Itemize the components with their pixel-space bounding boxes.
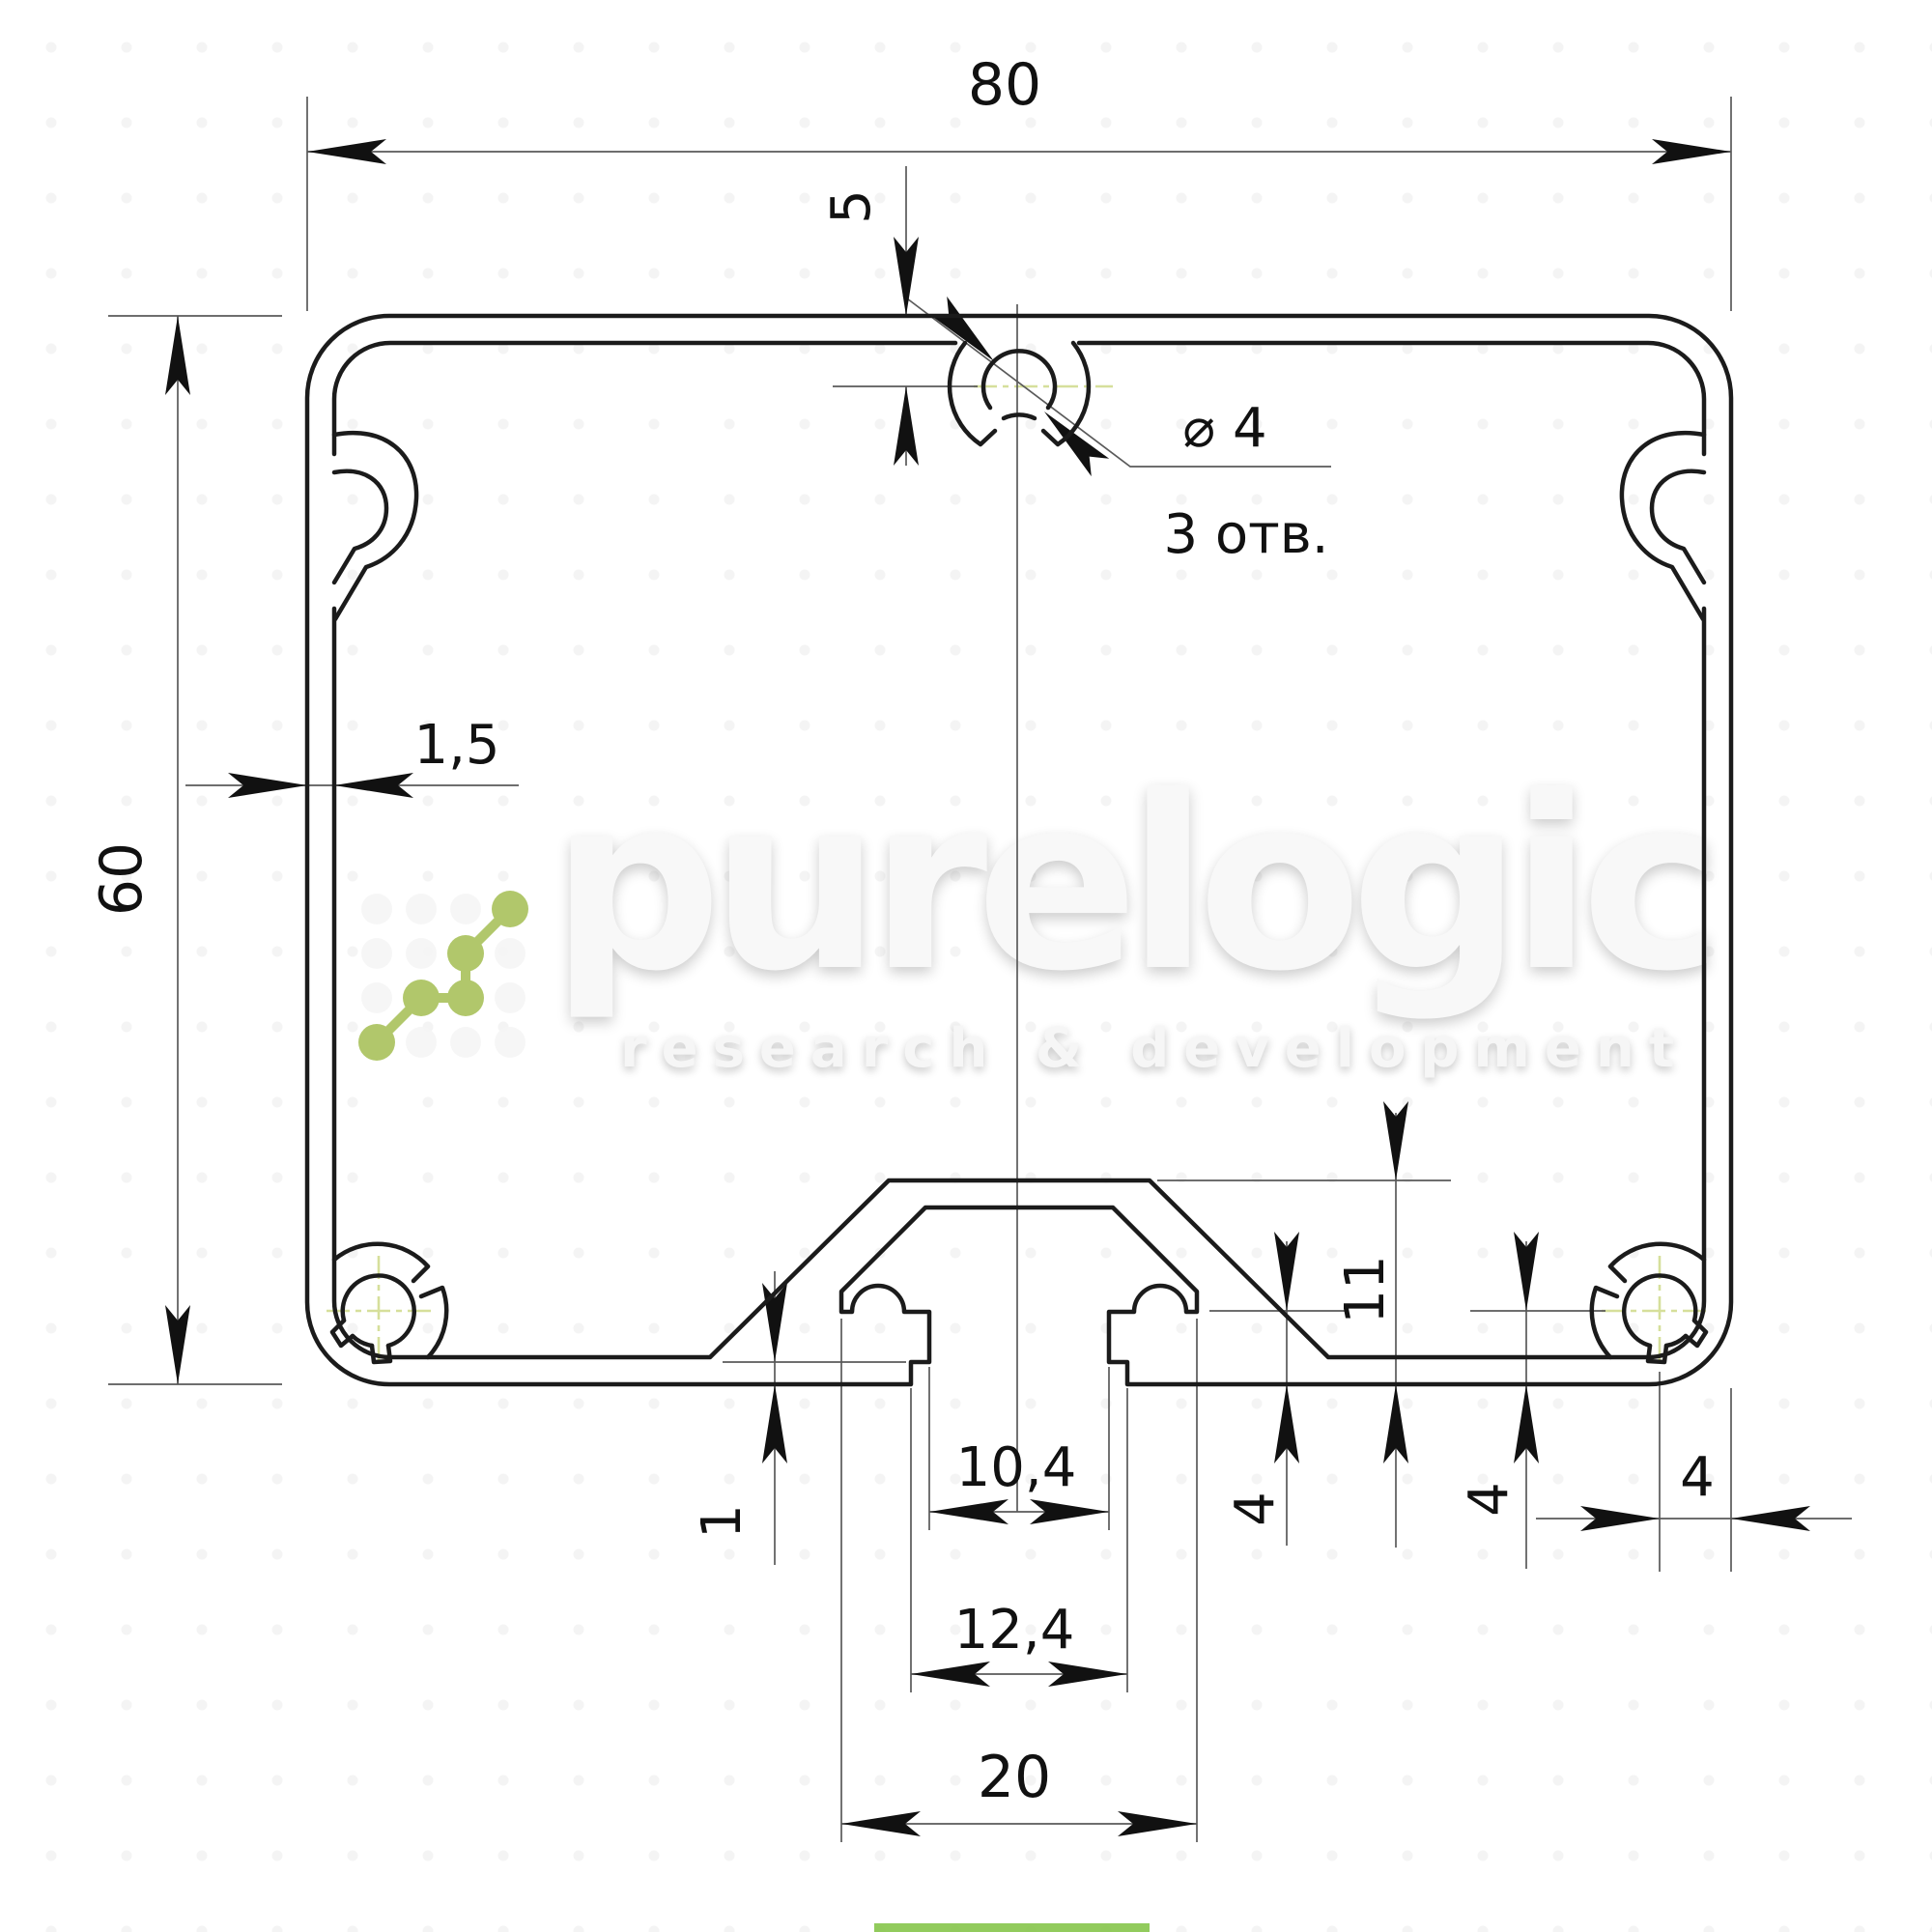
profile-drawing-svg: 80 60 5 ⌀ 4 3 отв. 1,5 11 4 4 4 1 10,4 1… <box>0 0 1932 1932</box>
profile-outer-contour <box>307 316 1731 1384</box>
profile-inner-contour <box>334 343 1704 1357</box>
dim-label-corner-offset-right-h: 4 <box>1680 1446 1715 1509</box>
dim-label-lip-step: 1 <box>691 1504 753 1539</box>
dim-label-slot-height: 11 <box>1334 1255 1397 1323</box>
dim-label-overall-height: 60 <box>88 842 156 916</box>
right-wall-hook <box>1622 433 1704 619</box>
dim-label-hole-diameter: ⌀ 4 <box>1182 397 1266 460</box>
dim-label-top-hole-offset: 5 <box>820 189 883 224</box>
dim-label-slot-opening: 10,4 <box>956 1436 1077 1499</box>
bottom-accent-bar <box>874 1923 1150 1932</box>
dim-label-corner-offset-right-v: 4 <box>1458 1482 1520 1517</box>
technical-drawing-canvas: purelogic research & development <box>0 0 1932 1932</box>
dim-label-slot-recess: 12,4 <box>954 1599 1075 1662</box>
logo-dot-grid <box>358 891 528 1061</box>
dim-label-slot-cavity: 20 <box>978 1744 1051 1811</box>
bottom-right-screw-boss <box>1592 1244 1706 1362</box>
bottom-left-screw-boss <box>332 1244 446 1362</box>
dim-label-wall-thickness: 1,5 <box>413 714 499 777</box>
dimension-lines <box>108 97 1852 1842</box>
centerlines <box>327 386 1712 1366</box>
left-wall-hook <box>334 433 416 619</box>
dim-label-corner-offset-mid: 4 <box>1224 1492 1287 1526</box>
dim-label-overall-width: 80 <box>968 51 1041 119</box>
dim-label-hole-count: 3 отв. <box>1163 503 1328 566</box>
